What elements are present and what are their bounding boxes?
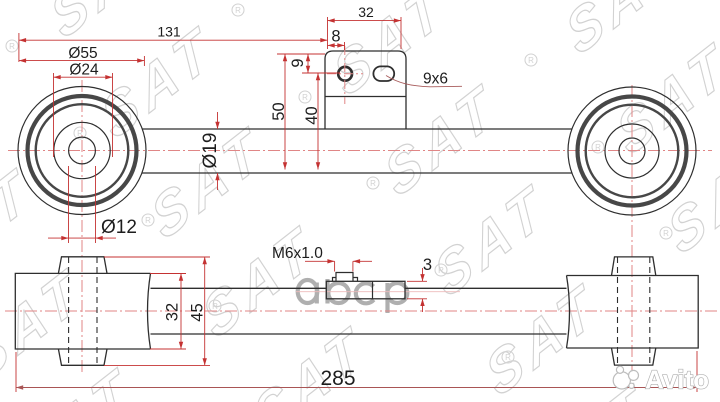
svg-text:9: 9 <box>289 58 307 67</box>
svg-text:Avito: Avito <box>645 365 709 395</box>
svg-text:M6x1.0: M6x1.0 <box>272 245 323 262</box>
svg-text:45: 45 <box>189 303 207 321</box>
svg-text:285: 285 <box>320 367 355 390</box>
svg-text:Ø55: Ø55 <box>68 45 97 62</box>
svg-text:32: 32 <box>164 303 182 321</box>
svg-text:Ø12: Ø12 <box>101 217 137 238</box>
svg-text:40: 40 <box>303 106 321 124</box>
svg-text:131: 131 <box>157 24 181 40</box>
svg-text:8: 8 <box>331 28 340 46</box>
svg-text:R: R <box>528 56 534 65</box>
svg-text:Ø24: Ø24 <box>69 62 99 79</box>
svg-text:R: R <box>505 353 511 362</box>
svg-text:R: R <box>9 42 15 51</box>
svg-text:32: 32 <box>358 4 374 20</box>
svg-text:R: R <box>212 302 218 311</box>
svg-text:R: R <box>370 179 376 188</box>
svg-text:3: 3 <box>423 256 432 274</box>
svg-text:50: 50 <box>270 102 288 120</box>
svg-text:R: R <box>145 216 151 225</box>
svg-text:R: R <box>663 229 669 238</box>
svg-text:R: R <box>302 93 308 102</box>
svg-text:Ø19: Ø19 <box>200 133 221 169</box>
svg-text:9x6: 9x6 <box>423 71 448 88</box>
svg-text:R: R <box>235 6 241 15</box>
svg-text:R: R <box>438 266 444 275</box>
